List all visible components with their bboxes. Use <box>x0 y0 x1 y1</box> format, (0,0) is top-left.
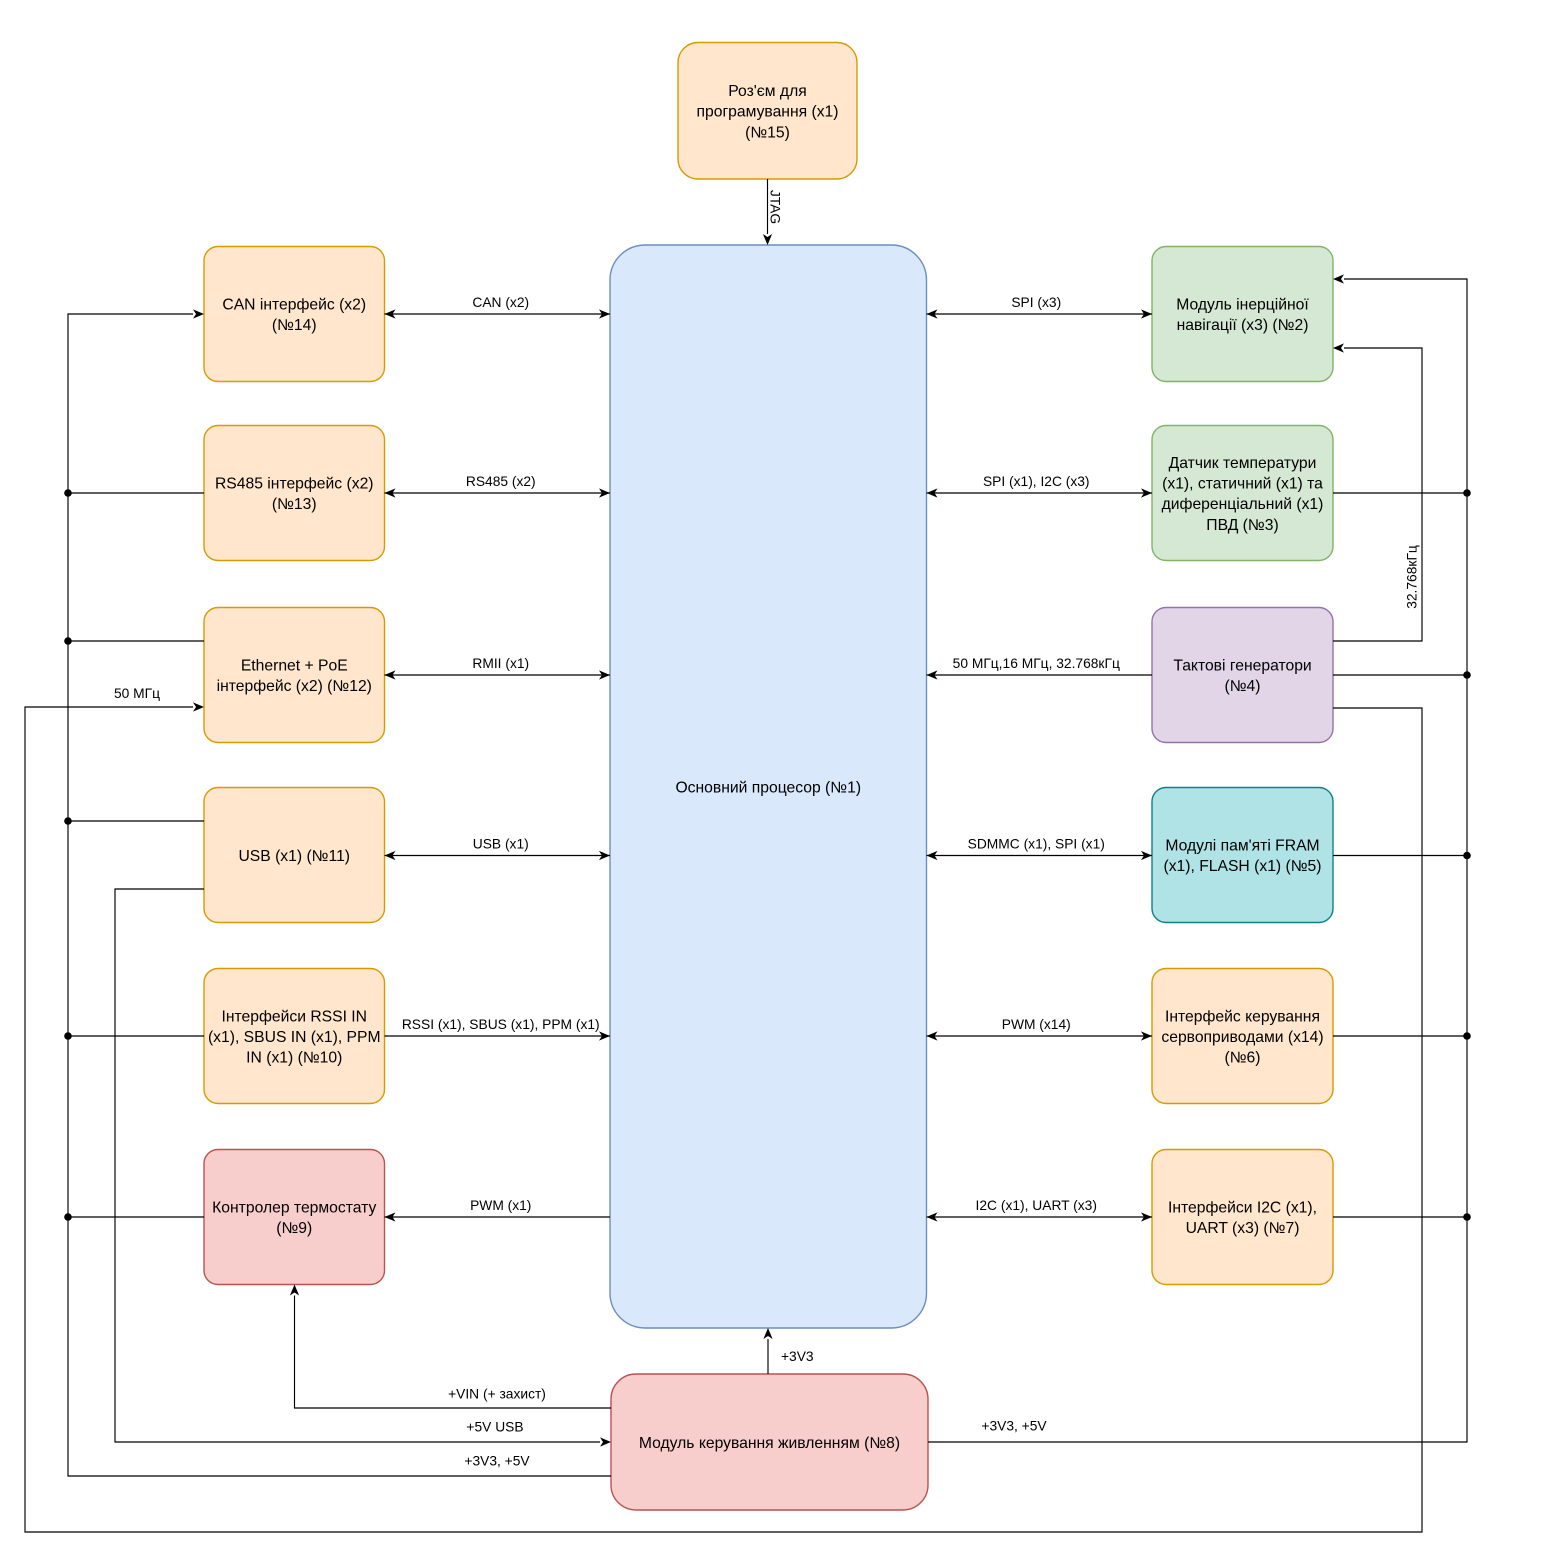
svg-text:RMII (x1): RMII (x1) <box>472 656 529 671</box>
svg-text:I2C (x1), UART (x3): I2C (x1), UART (x3) <box>976 1198 1097 1213</box>
svg-text:IN (x1) (№10): IN (x1) (№10) <box>246 1050 342 1067</box>
svg-text:(№9): (№9) <box>276 1220 312 1237</box>
svg-text:Модуль інерційної: Модуль інерційної <box>1176 297 1309 314</box>
svg-text:PWM (x1): PWM (x1) <box>470 1198 531 1213</box>
svg-text:(x1), SBUS IN (x1), PPM: (x1), SBUS IN (x1), PPM <box>208 1029 381 1046</box>
svg-text:+5V USB: +5V USB <box>466 1420 523 1435</box>
svg-text:Датчик температури: Датчик температури <box>1169 455 1317 472</box>
svg-text:(№14): (№14) <box>272 317 317 334</box>
svg-text:ПВД (№3): ПВД (№3) <box>1206 517 1278 534</box>
svg-text:інтерфейс (x2) (№12): інтерфейс (x2) (№12) <box>217 678 372 695</box>
svg-text:RSSI (x1), SBUS (x1), PPM (x1): RSSI (x1), SBUS (x1), PPM (x1) <box>402 1017 600 1032</box>
svg-text:диференціальний (x1): диференціальний (x1) <box>1162 496 1324 513</box>
svg-text:(№15): (№15) <box>745 124 790 141</box>
svg-text:RS485 (x2): RS485 (x2) <box>466 474 536 489</box>
svg-text:+VIN (+ захист): +VIN (+ захист) <box>448 1387 546 1402</box>
svg-text:програмування (x1): програмування (x1) <box>697 104 839 121</box>
svg-text:PWM (x14): PWM (x14) <box>1002 1017 1071 1032</box>
svg-text:RS485 інтерфейс (x2): RS485 інтерфейс (x2) <box>215 476 374 493</box>
svg-text:SDMMC (x1), SPI (x1): SDMMC (x1), SPI (x1) <box>968 837 1105 852</box>
svg-text:+3V3, +5V: +3V3, +5V <box>981 1419 1047 1434</box>
svg-text:50 МГц,16 МГц, 32.768кГц: 50 МГц,16 МГц, 32.768кГц <box>953 656 1120 671</box>
svg-text:Основний процесор (№1): Основний процесор (№1) <box>675 779 861 796</box>
svg-text:Інтерфейси I2C (x1),: Інтерфейси I2C (x1), <box>1168 1200 1317 1217</box>
svg-text:Інтерфейс керування: Інтерфейс керування <box>1165 1008 1320 1025</box>
svg-text:Ethernet + PoE: Ethernet + PoE <box>241 658 348 675</box>
svg-text:32.768кГц: 32.768кГц <box>1405 545 1420 609</box>
svg-text:(№6): (№6) <box>1224 1050 1260 1067</box>
svg-text:UART (x3) (№7): UART (x3) (№7) <box>1186 1220 1300 1237</box>
svg-text:Інтерфейси RSSI IN: Інтерфейси RSSI IN <box>222 1008 368 1025</box>
svg-text:USB (x1) (№11): USB (x1) (№11) <box>238 848 350 865</box>
svg-text:+3V3, +5V: +3V3, +5V <box>464 1454 530 1469</box>
svg-text:CAN інтерфейс (x2): CAN інтерфейс (x2) <box>222 297 366 314</box>
svg-text:SPI (x1), I2C (x3): SPI (x1), I2C (x3) <box>983 474 1090 489</box>
svg-text:(x1), FLASH (x1) (№5): (x1), FLASH (x1) (№5) <box>1163 858 1321 875</box>
svg-text:(x1), статичний (x1) та: (x1), статичний (x1) та <box>1162 476 1323 493</box>
svg-text:SPI (x3): SPI (x3) <box>1011 295 1061 310</box>
svg-text:+3V3: +3V3 <box>781 1349 814 1364</box>
svg-text:JTAG: JTAG <box>768 190 783 224</box>
svg-text:Модулі пам'яті FRAM: Модулі пам'яті FRAM <box>1165 838 1319 855</box>
svg-text:Контролер термостату: Контролер термостату <box>212 1200 376 1217</box>
svg-text:Тактові генератори: Тактові генератори <box>1173 658 1311 675</box>
svg-text:навігації (x3) (№2): навігації (x3) (№2) <box>1177 317 1309 334</box>
svg-text:USB (x1): USB (x1) <box>473 837 529 852</box>
svg-text:50 МГц: 50 МГц <box>114 686 160 701</box>
svg-text:(№4): (№4) <box>1224 678 1260 695</box>
svg-text:(№13): (№13) <box>272 496 317 513</box>
svg-text:сервоприводами (x14): сервоприводами (x14) <box>1161 1029 1323 1046</box>
svg-text:Роз'єм для: Роз'єм для <box>728 83 806 100</box>
svg-text:CAN (x2): CAN (x2) <box>472 295 529 310</box>
svg-text:Модуль керування живленням (№8: Модуль керування живленням (№8) <box>639 1435 900 1452</box>
